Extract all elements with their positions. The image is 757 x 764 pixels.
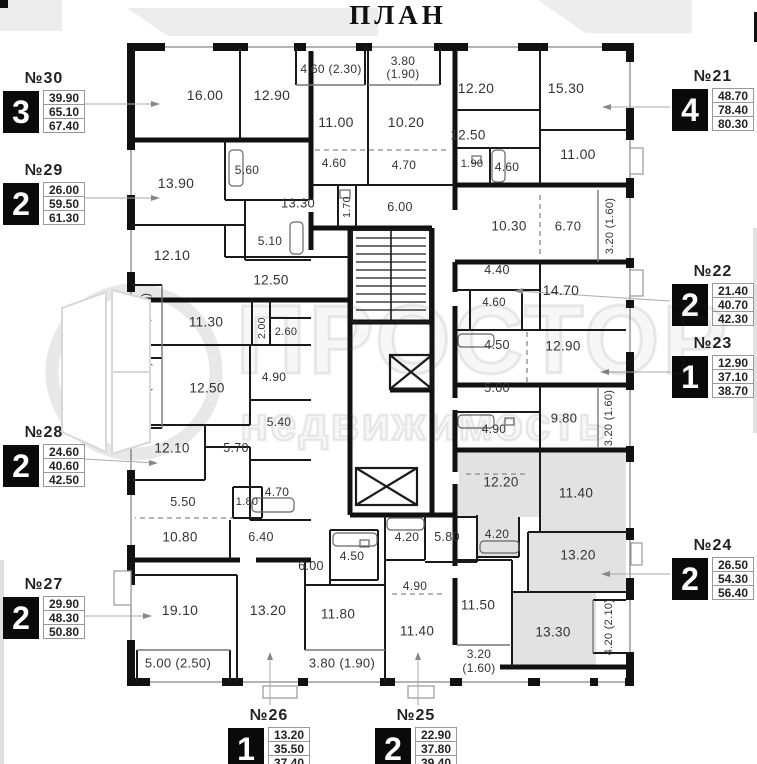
room-area-label: 4.50 [340,549,365,563]
apartment-number: №29 [3,162,85,180]
room-area-label: 16.00 [187,87,224,103]
room-area-label: 3.80 (1.90) [309,656,375,671]
apartment-callout: №21448.7078.4080.30 [672,68,754,131]
apartment-number: №30 [3,70,85,88]
area-value: 26.00 [43,182,85,197]
room-area-label: 4.90 [262,370,287,384]
apartment-callout: №24226.5054.3056.40 [672,537,754,600]
room-area-label: 3.60 (1.80) [140,293,152,350]
room-area-label: 12.20 [458,80,495,96]
room-area-label: 3.20 (1.60) [604,198,616,255]
area-value: 37.80 [415,741,457,756]
apartment-callout: №23112.9037.1038.70 [672,335,754,398]
staircase [352,230,430,322]
apartment-number: №22 [672,263,754,281]
room-area-label: 4.60 [495,160,520,174]
room-area-label: 11.40 [559,486,593,501]
room-area-label: (1.60) [462,661,495,675]
area-value: 39.90 [43,90,85,105]
area-value: 42.50 [43,472,85,487]
area-value: 26.50 [712,557,754,572]
room-area-label: 4.20 (2.10) [603,599,615,656]
room-area-label: 4.20 [485,527,510,541]
room-area-label: 11.30 [189,315,223,330]
room-area-label: 3.20 [467,647,492,661]
area-value: 50.80 [43,624,85,639]
apartment-number: №28 [3,424,85,442]
area-value: 24.60 [43,444,85,459]
apartment-number: №27 [3,576,85,594]
area-values: 12.9037.1038.70 [712,356,754,398]
room-area-label: 4.70 [392,158,417,172]
apartment-number: №25 [375,707,457,725]
room-area-label: 12.20 [483,475,518,490]
area-values: 39.9065.1067.40 [43,91,85,133]
room-area-label: 4.50 [484,338,510,352]
room-count-badge: 2 [3,597,39,639]
apartment-number: №21 [672,68,754,86]
area-values: 29.9048.3050.80 [43,597,85,639]
floor-plan-drawing [0,0,757,764]
room-area-label: 5.00 (2.50) [145,656,211,671]
room-count-badge: 4 [672,89,708,131]
area-values: 24.6040.6042.50 [43,445,85,487]
room-area-label: 14.70 [543,282,580,298]
room-count-badge: 2 [672,558,708,600]
room-area-label: 13.30 [535,625,570,640]
room-area-label: 4.90 [482,422,507,436]
room-area-label: 4.60 [322,156,347,170]
area-value: 37.10 [712,369,754,384]
room-area-label: 4.40 [484,263,510,277]
area-value: 40.60 [43,458,85,473]
room-area-label: 12.10 [154,441,189,456]
area-value: 40.70 [712,297,754,312]
elevator-shaft [356,355,432,505]
apartment-callout: №30339.9065.1067.40 [3,70,85,133]
room-count-badge: 2 [3,183,39,225]
room-area-label: 4.20 [395,530,420,544]
room-area-label: 10.20 [388,114,425,130]
room-area-label: 13.20 [560,548,595,563]
plan-title: ПЛАН [330,0,466,31]
area-values: 26.5054.3056.40 [712,558,754,600]
room-area-label: 5.80 [434,530,460,544]
room-count-badge: 2 [3,445,39,487]
room-area-label: 10.80 [162,530,197,545]
area-value: 38.70 [712,383,754,398]
apartment-callout: №25222.9037.8039.40 [375,707,457,764]
apartment-number: №26 [228,707,310,725]
room-area-label: 5.10 [258,234,283,248]
room-area-label: 6.00 [387,200,413,214]
area-value: 29.90 [43,596,85,611]
room-area-label: 1.90 [461,158,484,170]
room-area-label: 3.80 (1.90) [141,362,153,419]
room-area-label: 4.60 [482,297,506,309]
room-area-label: 5.00 [484,381,510,395]
room-area-label: 9.80 [551,411,578,426]
room-area-label: 3.20 (1.60) [603,390,615,447]
room-area-label: 6.70 [555,219,582,234]
room-area-label: 19.10 [162,602,199,618]
room-area-label: 4.70 [265,485,290,499]
room-area-label: 6.00 [298,559,324,573]
room-count-badge: 2 [375,728,411,764]
room-area-label: 11.00 [318,114,354,130]
room-area-label: 13.20 [250,602,287,618]
room-area-label: 11.40 [400,624,434,639]
room-area-label: 2.00 [256,317,268,339]
room-area-label: 4.90 [403,579,428,593]
area-values: 21.4040.7042.30 [712,284,754,326]
room-area-label: 12.90 [254,87,291,103]
room-area-label: 6.40 [248,530,274,544]
room-area-label: 12.50 [189,381,224,396]
floor-plan-image: ПЛАН 16.0012.904.60 (2.30)3.80(1.90)11.0… [0,0,757,764]
area-values: 22.9037.8039.40 [415,728,457,764]
area-values: 26.0059.5061.30 [43,183,85,225]
area-value: 22.90 [415,727,457,742]
room-area-label: 11.50 [461,598,495,613]
room-count-badge: 2 [672,284,708,326]
apartment-callout: №27229.9048.3050.80 [3,576,85,639]
room-area-label: 5.50 [170,495,196,509]
room-area-label: 15.30 [548,80,585,96]
room-area-label: 4.60 (2.30) [300,62,361,76]
area-value: 13.20 [268,727,310,742]
area-value: 35.50 [268,741,310,756]
area-value: 21.40 [712,283,754,298]
apartment-number: №23 [672,335,754,353]
room-area-label: 1.70 [341,196,353,218]
room-area-label: 1.80 [236,496,259,508]
apartment-callout: №22221.4040.7042.30 [672,263,754,326]
room-area-label: 11.00 [560,146,596,162]
room-area-label: 5.60 [235,163,260,177]
area-value: 61.30 [43,210,85,225]
area-value: 54.30 [712,571,754,586]
area-values: 13.2035.5037.40 [268,728,310,764]
area-value: 56.40 [712,585,754,600]
room-area-label: 10.30 [491,219,526,234]
room-area-label: (1.90) [386,67,419,81]
area-value: 12.90 [712,355,754,370]
apartment-callout: №29226.0059.5061.30 [3,162,85,225]
area-value: 78.40 [712,102,754,117]
area-value: 80.30 [712,116,754,131]
room-count-badge: 3 [3,91,39,133]
area-value: 65.10 [43,104,85,119]
area-value: 39.40 [415,755,457,764]
room-area-label: 13.90 [158,175,195,191]
apartment-number: №24 [672,537,754,555]
area-values: 48.7078.4080.30 [712,89,754,131]
apartment-callout: №28224.6040.6042.50 [3,424,85,487]
area-value: 59.50 [43,196,85,211]
area-value: 37.40 [268,755,310,764]
room-area-label: 2.60 [275,326,298,338]
apartment-callout: №26113.2035.5037.40 [228,707,310,764]
room-area-label: 5.70 [223,441,249,455]
room-area-label: 11.80 [321,607,355,622]
room-area-label: 3.80 [391,54,416,68]
room-area-label: 12.50 [253,273,288,288]
area-value: 42.30 [712,311,754,326]
room-area-label: 5.40 [267,415,292,429]
room-area-label: 12.90 [545,339,580,354]
room-area-label: 12.50 [450,128,485,143]
area-value: 48.70 [712,88,754,103]
area-value: 67.40 [43,118,85,133]
room-count-badge: 1 [228,728,264,764]
room-count-badge: 1 [672,356,708,398]
room-area-label: 12.10 [154,247,191,263]
area-value: 48.30 [43,610,85,625]
room-area-label: 13.30 [281,196,315,211]
